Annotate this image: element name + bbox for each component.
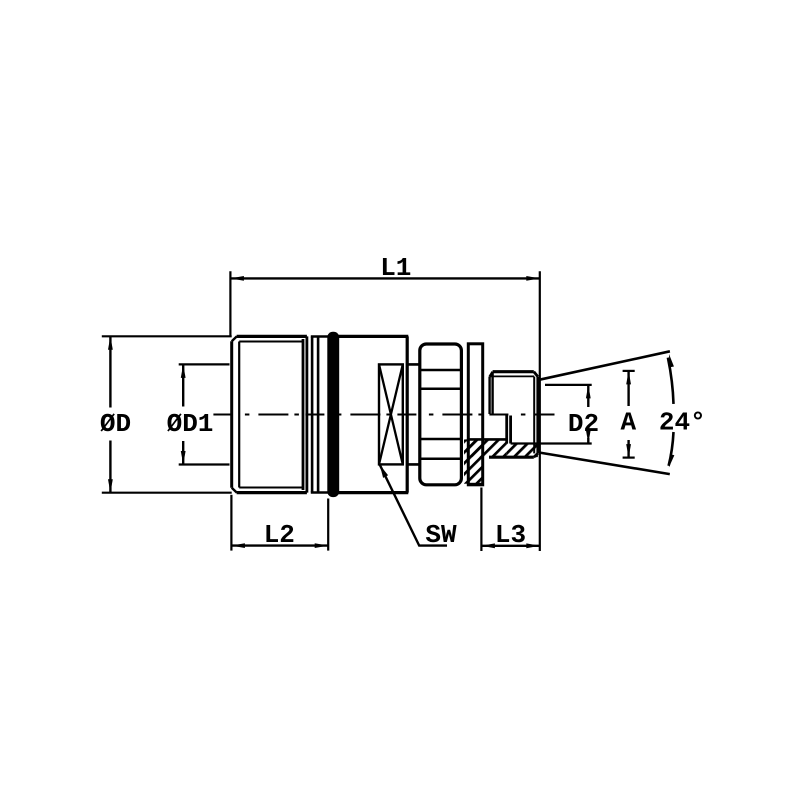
- svg-text:ØD1: ØD1: [167, 409, 214, 439]
- svg-text:24°: 24°: [659, 408, 706, 438]
- svg-text:ØD: ØD: [100, 409, 131, 439]
- svg-text:L1: L1: [380, 253, 411, 283]
- svg-text:A: A: [620, 408, 636, 438]
- svg-text:D2: D2: [568, 409, 599, 439]
- svg-text:L3: L3: [495, 520, 526, 550]
- svg-text:L2: L2: [264, 520, 295, 550]
- svg-text:SW: SW: [425, 520, 457, 550]
